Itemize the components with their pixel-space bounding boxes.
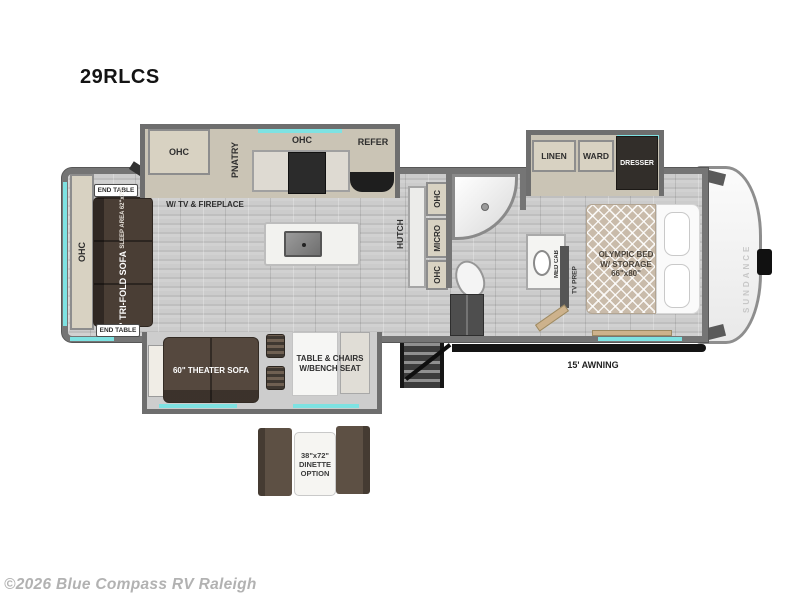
- shower-drain: [481, 203, 489, 211]
- ohc-lower-label: OHC: [433, 266, 442, 284]
- tri-fold-sofa: 75" TRI-FOLD SOFA SLEEP AREA 62"x75": [93, 197, 153, 327]
- linen-cabinet: LINEN: [532, 140, 576, 172]
- ohc-lower-cabinet: OHC: [426, 260, 448, 290]
- kitchen-island: [264, 222, 360, 266]
- bottom-window-strip-rear: [70, 337, 114, 341]
- slide-window-strip-left: [159, 404, 237, 408]
- dinette-line1: 38"x72": [299, 451, 331, 460]
- slide-window-strip: [258, 129, 342, 133]
- dining-chair-2: [266, 366, 285, 390]
- slide-window-strip-right: [293, 404, 359, 408]
- angled-bench: [535, 304, 569, 331]
- tv-prep-label: TV PREP: [570, 252, 580, 308]
- entry-steps: [400, 340, 444, 388]
- entry-door-landing: [450, 294, 484, 336]
- refrigerator-label: REFER: [350, 136, 396, 148]
- step-railing: [405, 343, 452, 381]
- awning-bar: [452, 344, 706, 352]
- range-stove: [288, 152, 326, 194]
- theater-sofa: 60" THEATER SOFA: [163, 337, 259, 403]
- dinette-line2: DINETTE: [299, 460, 331, 469]
- floorplan-page: 29RLCS SUNDANCE OHC PNATRY OHC REFER LIN…: [0, 0, 800, 600]
- table-line2: W/BENCH SEAT: [286, 364, 374, 374]
- theater-sofa-label: 60" THEATER SOFA: [173, 366, 249, 375]
- hitch-pin: [757, 249, 772, 275]
- dinette-table: 38"x72" DINETTE OPTION: [294, 432, 336, 496]
- dresser: DRESSER: [616, 136, 658, 190]
- awning-label: 15' AWNING: [548, 360, 638, 370]
- bed-line1: OLYMPIC BED: [586, 250, 666, 260]
- bed-line3: 66"x80": [586, 269, 666, 279]
- dining-chair-1: [266, 334, 285, 358]
- ohc-upper-label: OHC: [433, 190, 442, 208]
- island-sink: [284, 231, 322, 257]
- rear-window-strip: [63, 182, 67, 326]
- bed-line2: W/ STORAGE: [586, 260, 666, 270]
- pillow-top: [664, 212, 690, 256]
- bottom-window-strip-bedroom: [598, 337, 682, 341]
- refrigerator: [350, 172, 394, 192]
- end-table-bottom: END TABLE: [96, 324, 140, 337]
- copyright-text: ©2026 Blue Compass RV Raleigh: [4, 576, 257, 594]
- end-cabinet: [148, 345, 164, 397]
- tv-prep-wall: [560, 246, 569, 308]
- pantry-label: PNATRY: [228, 132, 242, 188]
- ohc-upper-cabinet: OHC: [426, 182, 448, 216]
- dinette-bench-left: [258, 428, 292, 496]
- cabinet-ohc-left: OHC: [148, 129, 210, 175]
- bed-label: OLYMPIC BED W/ STORAGE 66"x80": [586, 250, 666, 279]
- rear-ohc-label: OHC: [77, 242, 87, 262]
- dresser-label: DRESSER: [620, 160, 654, 167]
- ent-center-line2: W/ TV & FIREPLACE: [150, 200, 260, 210]
- hutch-label: HUTCH: [394, 204, 406, 264]
- microwave-label: MICRO: [433, 225, 442, 252]
- brand-logo-text: SUNDANCE: [742, 197, 751, 313]
- shower: [452, 174, 518, 240]
- dinette-line3: OPTION: [299, 469, 331, 478]
- dinette-option: 38"x72" DINETTE OPTION: [256, 424, 372, 498]
- living-slide-out: 60" THEATER SOFA TABLE & CHAIRS W/BENCH …: [142, 332, 382, 414]
- wardrobe: WARD: [578, 140, 614, 172]
- sofa-sleep-label: SLEEP AREA 62"x75": [120, 187, 126, 249]
- end-table-top: END TABLE: [94, 184, 138, 197]
- hutch-counter: [408, 186, 426, 288]
- table-chairs-label: TABLE & CHAIRS W/BENCH SEAT: [286, 354, 374, 373]
- sink-drain: [302, 243, 306, 247]
- vanity-sink: [533, 250, 551, 276]
- bedroom-slide-out: LINEN WARD DRESSER: [526, 130, 664, 196]
- dinette-label: 38"x72" DINETTE OPTION: [299, 451, 331, 478]
- cabinet-ohc-center-label: OHC: [280, 134, 324, 146]
- microwave-cabinet: MICRO: [426, 218, 448, 258]
- kitchen-slide-out: OHC PNATRY OHC REFER: [140, 124, 400, 198]
- rear-ohc-cabinet: OHC: [70, 174, 94, 330]
- model-title: 29RLCS: [80, 66, 160, 89]
- dinette-bench-right: [336, 426, 370, 494]
- table-line1: TABLE & CHAIRS: [286, 354, 374, 364]
- pillow-bottom: [664, 264, 690, 308]
- bed-foot-bench: [592, 330, 672, 336]
